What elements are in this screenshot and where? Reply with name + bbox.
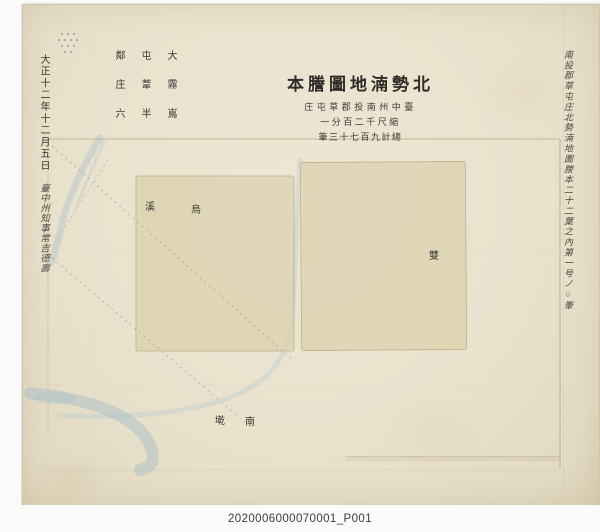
place-label: 烏	[191, 201, 201, 216]
place-label: 南	[245, 413, 255, 428]
caption-bar: 2020006000070001_P001	[0, 505, 600, 532]
parcel-blocks	[136, 161, 467, 351]
archive-scan-page: 本謄圖地湳勢北 庄屯草郡投南州中臺 一分百二千尺縮 筆三十七百九計總 大霧嶌 屯…	[0, 0, 600, 532]
map-title: 本謄圖地湳勢北	[278, 70, 443, 95]
corner-note-column: 鄰庄六	[111, 50, 126, 162]
subtitle-jurisdiction: 庄屯草郡投南州中臺	[278, 100, 443, 113]
subtitle-scale: 一分百二千尺縮	[278, 115, 443, 128]
archive-id-caption: 2020006000070001_P001	[228, 513, 372, 525]
corner-note-columns: 大霧嶌 屯葦半 鄰庄六	[100, 50, 178, 162]
dot-cluster-stamp	[58, 33, 78, 53]
date-text: 大正十二年十二月五日	[38, 54, 49, 172]
governor-signature-text: 臺中州知事常吉德壽	[38, 183, 48, 273]
title-block: 本謄圖地湳勢北 庄屯草郡投南州中臺 一分百二千尺縮 筆三十七百九計總	[278, 70, 443, 143]
corner-note-column: 屯葦半	[137, 50, 152, 162]
corner-note-column: 大霧嶌	[163, 50, 178, 162]
date-and-signature-column: 大正十二年十二月五日 臺中州知事常吉德壽	[36, 54, 51, 278]
right-margin-note: 南投郡草屯庄北勢湳地圖謄本二十二葉之內第一号ノ○筆	[562, 50, 575, 330]
place-label: 墘	[215, 412, 225, 427]
subtitle-parcel-count: 筆三十七百九計總	[278, 130, 443, 143]
place-label: 雙	[429, 247, 439, 262]
place-label: 溪	[145, 198, 155, 213]
